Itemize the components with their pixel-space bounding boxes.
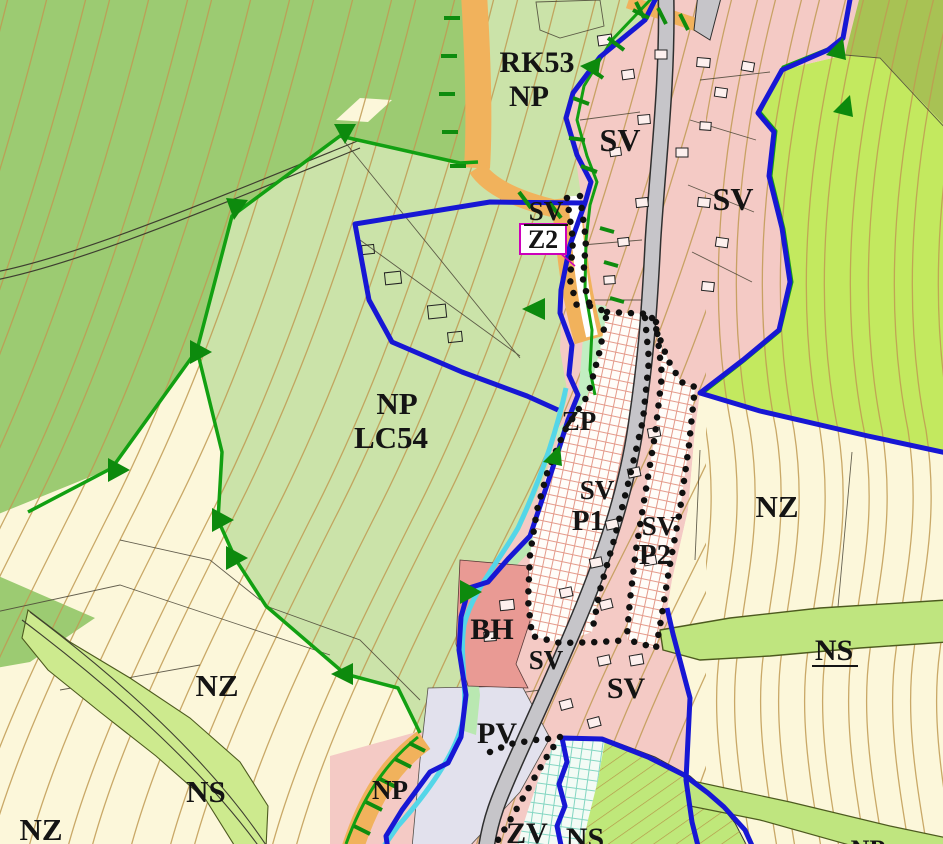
zone-label-Z2: Z2 (528, 225, 558, 254)
zone-label-NZ-left: NZ (195, 668, 238, 703)
zone-label-SV-z2: SV (529, 196, 564, 226)
zone-label-SV-p1: SV (580, 475, 615, 505)
zone-label-BH: BH (470, 613, 513, 646)
corridor-orange-top (474, 0, 478, 168)
zone-label-NP-partial: NP (851, 835, 886, 844)
zone-label-P2: P2 (639, 539, 671, 571)
zone-label-ZV: ZV (506, 817, 548, 844)
zone-label-LC54: LC54 (354, 420, 428, 455)
zone-label-NP-bottom: NP (372, 775, 408, 805)
map-canvas: RK53 NP SV SV SV Z2 NP LC54 ZP SV P1 SV … (0, 0, 943, 844)
zone-label-NS-bottom: NS (566, 822, 604, 844)
zone-label-SV-1: SV (600, 122, 641, 158)
zone-label-SV-low: SV (607, 672, 646, 705)
zoning-map: RK53 NP SV SV SV Z2 NP LC54 ZP SV P1 SV … (0, 0, 943, 844)
zone-label-ZP: ZP (562, 406, 597, 436)
zone-label-NZ-right: NZ (755, 489, 798, 524)
zone-label-NS-left: NS (186, 774, 226, 809)
zone-label-NP-top: NP (509, 80, 549, 113)
zone-label-SV-p2: SV (642, 511, 677, 541)
zone-label-NS-right: NS (815, 634, 853, 667)
zone-label-P1: P1 (572, 505, 604, 537)
zone-label-SV-bh: SV (529, 645, 564, 675)
zone-label-NZ-bottomleft: NZ (19, 812, 62, 844)
zone-label-PV: PV (477, 717, 517, 750)
zone-label-NP-lc54: NP (376, 386, 417, 421)
zone-label-RK53: RK53 (500, 46, 575, 79)
zone-label-SV-2: SV (713, 181, 754, 217)
